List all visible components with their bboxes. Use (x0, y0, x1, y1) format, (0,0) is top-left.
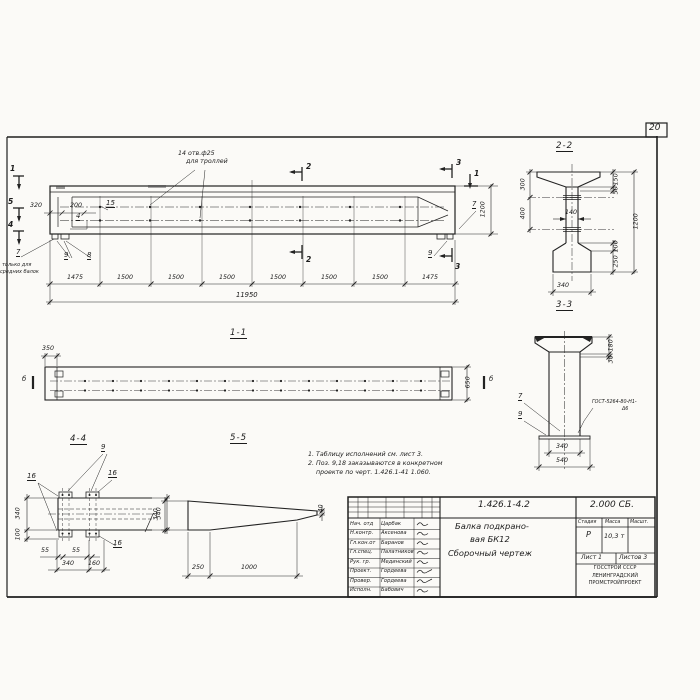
pos-label-9: 9 (518, 411, 522, 419)
dim-label: 1500 (365, 275, 395, 282)
personnel-name: Палатников (381, 550, 414, 555)
cut-mark-2-top: 2 (306, 163, 311, 171)
personnel-role: Н.контр. (350, 531, 373, 536)
dim-label: 340 (557, 283, 569, 290)
dim-label: 200 (70, 203, 82, 210)
section-title-5-5: 5-5 (230, 434, 247, 444)
dim-label: 300 (521, 171, 528, 197)
dim-label: 1500 (263, 275, 293, 282)
dim-label: 1500 (110, 275, 140, 282)
dim-label: 100 (16, 521, 23, 547)
note-line-3: проекте по черт. 1.426.1-41 1.060. (316, 470, 431, 477)
holes-note-line1: 14 отв.ф25 (178, 151, 215, 158)
org-name-line3: ПРОМСТРОЙПРОЕКТ (577, 581, 653, 586)
dim-label: 1475 (60, 275, 90, 282)
personnel-role: Проект. (350, 569, 371, 574)
drawing-linework (0, 0, 700, 700)
drawing-title-line1: Балка подкрано- (455, 522, 529, 531)
dim-label: 55 (41, 548, 49, 555)
doc-code: 2.000 СБ. (590, 501, 634, 510)
plan-holes (84, 380, 422, 392)
dim-label: 250 (614, 248, 621, 274)
page-number: 20 (649, 124, 660, 133)
cut-mark-b-left: б (22, 376, 26, 383)
personnel-name: Аксенова (381, 531, 407, 536)
note-line-1: 1. Таблицу исполнений см. лист 3. (308, 452, 423, 459)
weld-note-2: Δ6 (622, 407, 628, 412)
main-elevation-linework (13, 164, 498, 305)
doc-number: 1.426.1-4.2 (478, 501, 530, 510)
personnel-role: Нач. отд (350, 522, 373, 527)
signature-scribbles (417, 523, 432, 592)
dim-label: 340 (556, 444, 568, 451)
sheet-number: Лист 1 (581, 555, 602, 561)
pos-label-9: 9 (101, 444, 105, 452)
section-title-4-4: 4-4 (70, 435, 87, 445)
sheet-count: Листов 3 (619, 555, 647, 561)
pos-label-7: 7 (16, 249, 20, 257)
cut-mark-3-bottom: 3 (455, 263, 460, 271)
pos-label-16: 16 (108, 470, 117, 478)
dim-label: 50 (614, 177, 621, 203)
dim-total: 11950 (236, 292, 258, 299)
weld-note: ГОСТ-5264-80-Н1- (592, 400, 637, 405)
section-4-4-linework (24, 454, 170, 573)
drawing-title-line3: Сборочный чертеж (448, 549, 532, 558)
dim-label: 1500 (161, 275, 191, 282)
dim-label: 30 (609, 346, 616, 372)
dim-label: 400 (521, 200, 528, 226)
cut-mark-1-left: 1 (10, 165, 15, 173)
section-title-2-2: 2-2 (556, 142, 573, 152)
pos-label-15: 15 (106, 200, 115, 208)
dim-label: 1000 (241, 565, 257, 572)
middle-beam-note-line2: средних балок (0, 270, 39, 275)
personnel-role: Рук. гр. (350, 560, 370, 565)
note-line-2: 2. Поз. 9,18 заказываются в конкретном (308, 461, 443, 468)
trolley-holes (99, 206, 401, 222)
dim-label: 1500 (314, 275, 344, 282)
column-header-stage: Стадия (578, 520, 596, 525)
cut-mark-2-bottom: 2 (306, 256, 311, 264)
section-1-1-linework (33, 353, 484, 403)
section-2-2-linework (526, 164, 638, 296)
personnel-name: Баранов (381, 541, 404, 546)
personnel-role: Гл.спец. (350, 550, 372, 555)
frame (7, 123, 667, 597)
dim-label: 340 (62, 561, 74, 568)
personnel-name: Царбак (381, 522, 401, 527)
pos-label-9: 9 (64, 252, 68, 260)
dim-label: 160 (88, 561, 100, 568)
dim-label: 40 (319, 495, 326, 521)
pos-label-4: 4 (76, 213, 80, 221)
holes-note-line2: для троллей (186, 159, 228, 166)
cut-mark-5-left: 5 (8, 198, 13, 206)
cut-mark-4-left: 4 (8, 221, 13, 229)
pos-label-8: 8 (87, 252, 91, 260)
dim-label: 1200 (634, 208, 641, 234)
org-name-line2: ЛЕНИНГРАДСКИЙ (577, 574, 653, 579)
pos-label-7: 7 (518, 393, 522, 401)
dim-label: 350 (42, 346, 54, 353)
mass-value: 10,3 т (604, 533, 624, 540)
pos-label-7-right: 7 (472, 201, 476, 209)
dim-label: 320 (30, 203, 42, 210)
column-header-scale: Масшт. (630, 520, 648, 525)
dim-label: 650 (466, 369, 473, 395)
personnel-role: Провер. (350, 579, 372, 584)
column-header-mass: Масса (605, 520, 620, 525)
dim-label: 1475 (415, 275, 445, 282)
dim-label: 1500 (212, 275, 242, 282)
cut-mark-3-top: 3 (456, 159, 461, 167)
personnel-name: Бабович (381, 588, 404, 593)
dim-label: 140 (565, 210, 577, 217)
org-name-line1: ГОССТРОЙ СССР (577, 566, 653, 571)
dim-label: 250 (192, 565, 204, 572)
section-title-3-3: 3-3 (556, 301, 573, 311)
cut-mark-b-right: б (489, 376, 493, 383)
section-title-1-1: 1-1 (230, 329, 247, 339)
pos-label-9-right: 9 (428, 250, 432, 258)
stage-value: Р (586, 531, 591, 539)
personnel-role: Исполн. (350, 588, 372, 593)
dim-label: 340 (154, 501, 161, 527)
middle-beam-note-line1: только для (2, 263, 31, 268)
dim-label: 1200 (481, 196, 488, 222)
pos-label-16: 16 (113, 540, 122, 548)
dim-label: 55 (72, 548, 80, 555)
personnel-role: Гл.кон.от (350, 541, 375, 546)
drawing-sheet: 20 14 отв.ф25 для троллей 1 5 4 2 2 3 1 … (0, 0, 700, 700)
dim-label: 540 (556, 458, 568, 465)
personnel-name: Гордеева (381, 569, 407, 574)
cut-mark-1-right: 1 (474, 170, 479, 178)
personnel-name: Гордеева (381, 579, 407, 584)
personnel-name: Мединский (381, 560, 412, 565)
pos-label-16: 16 (27, 473, 36, 481)
drawing-title-line2: вая БК12 (470, 535, 510, 544)
